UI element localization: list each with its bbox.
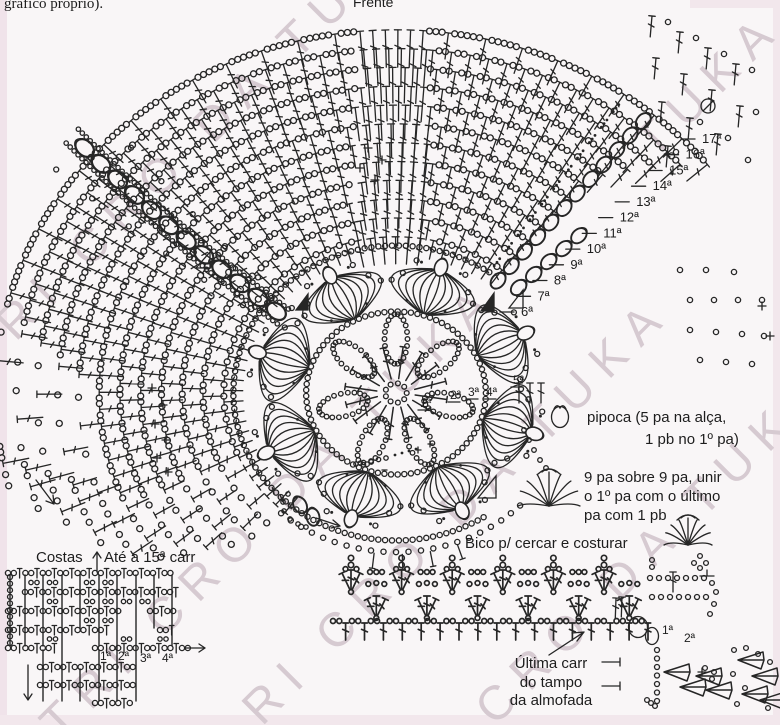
svg-text:7ª: 7ª [538, 288, 550, 303]
svg-text:Última carr: Última carr [515, 655, 588, 672]
svg-text:10ª: 10ª [587, 241, 606, 256]
svg-text:4ª: 4ª [162, 651, 174, 665]
svg-text:9ª: 9ª [570, 257, 582, 272]
svg-text:pa com 1 pb: pa com 1 pb [584, 507, 667, 524]
svg-text:o 1º pa com o último: o 1º pa com o último [584, 488, 720, 505]
svg-text:9 pa sobre 9 pa, unir: 9 pa sobre 9 pa, unir [584, 469, 722, 486]
svg-text:3ª: 3ª [468, 385, 480, 399]
svg-text:1ª: 1ª [100, 649, 112, 663]
svg-text:16ª: 16ª [686, 147, 705, 162]
svg-text:Bico p/ cercar e costurar: Bico p/ cercar e costurar [465, 535, 628, 552]
svg-text:11ª: 11ª [603, 225, 621, 240]
svg-text:8ª: 8ª [554, 273, 566, 288]
svg-text:Até a 15ª carr: Até a 15ª carr [104, 549, 195, 566]
svg-text:pipoca (5 pa na alça,: pipoca (5 pa na alça, [587, 409, 726, 426]
svg-text:2ª: 2ª [118, 649, 130, 663]
svg-text:Costas: Costas [36, 549, 83, 566]
svg-text:13ª: 13ª [636, 194, 655, 209]
svg-text:da almofada: da almofada [510, 692, 593, 709]
svg-text:Frente: Frente [353, 0, 394, 10]
svg-text:14ª: 14ª [653, 178, 672, 193]
svg-text:15ª: 15ª [669, 163, 688, 178]
svg-text:4ª: 4ª [486, 385, 498, 399]
svg-text:gráfico próprio).: gráfico próprio). [4, 0, 103, 12]
svg-text:2ª: 2ª [684, 631, 696, 645]
svg-text:do tampo: do tampo [520, 674, 583, 691]
svg-text:1 pb no 1º pa): 1 pb no 1º pa) [645, 431, 739, 448]
svg-text:3ª: 3ª [140, 651, 152, 665]
svg-text:2ª: 2ª [450, 388, 462, 402]
svg-text:12ª: 12ª [620, 210, 639, 225]
svg-text:1ª: 1ª [662, 623, 674, 637]
svg-text:1ª: 1ª [420, 396, 432, 410]
